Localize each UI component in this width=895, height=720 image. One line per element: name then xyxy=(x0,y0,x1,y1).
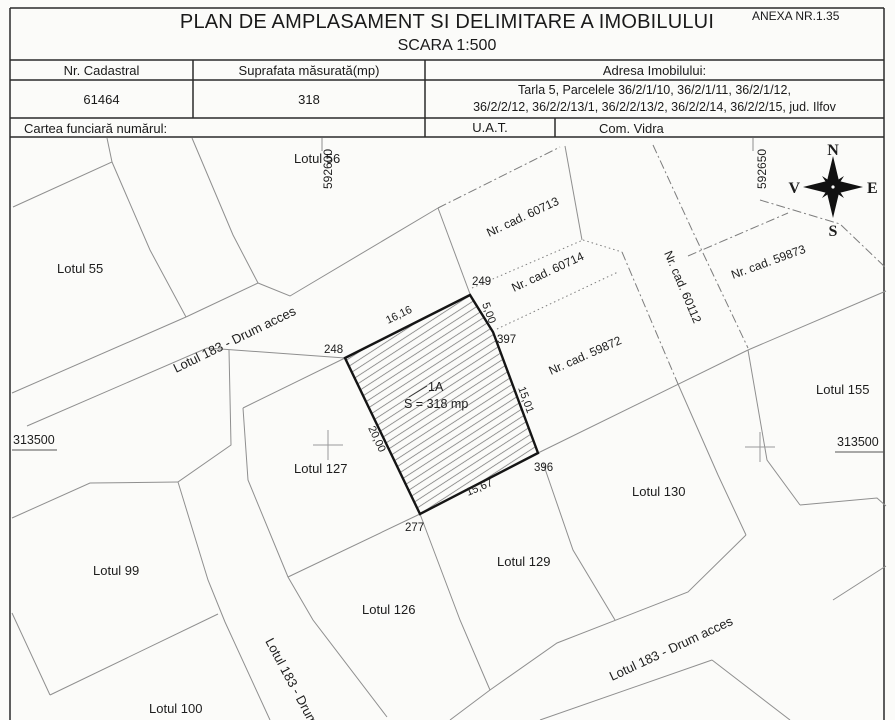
cadastral-plan-page: N S E V Lotul 55 Lotul 56 Lotul 99 Lotul… xyxy=(0,0,895,720)
header-cadastral-number: Nr. Cadastral xyxy=(10,60,193,80)
road-label-vertical: Lotul 183 - Drum acces xyxy=(262,635,339,720)
compass-v-label: V xyxy=(788,180,800,197)
point-label-396: 396 xyxy=(534,462,553,474)
grid-x-right-label: 313500 xyxy=(837,435,879,449)
point-label-248: 248 xyxy=(324,344,343,356)
address-line-1: Tarla 5, Parcelele 36/2/1/10, 36/2/1/11,… xyxy=(425,82,884,99)
annex-number: ANEXA NR.1.35 xyxy=(752,9,839,23)
dash-dot-boundary-lines xyxy=(438,145,886,384)
point-label-277: 277 xyxy=(405,522,424,534)
road-label-lower: Lotul 183 - Drum acces xyxy=(607,613,736,684)
grid-x-left-label: 313500 xyxy=(13,433,55,447)
point-label-249: 249 xyxy=(472,276,491,288)
lot-label-126: Lotul 126 xyxy=(362,602,416,617)
label-uat: U.A.T. xyxy=(425,118,555,137)
parcel-area-label: S = 318 mp xyxy=(404,397,468,411)
lot-label-127: Lotul 127 xyxy=(294,461,348,476)
grid-y-right-label: 592650 xyxy=(755,149,769,189)
parcel-id-label: 1A xyxy=(428,380,444,394)
value-measured-area: 318 xyxy=(193,80,425,118)
lot-label-55: Lotul 55 xyxy=(57,261,103,276)
grid-y-left-label: 592600 xyxy=(321,149,335,189)
lot-label-129: Lotul 129 xyxy=(497,554,551,569)
value-cadastral-number: 61464 xyxy=(10,80,193,118)
neighbor-label-60714: Nr. cad. 60714 xyxy=(509,249,586,295)
compass-n-label: N xyxy=(827,142,839,159)
compass-rose: N S E V xyxy=(788,142,877,240)
road-label-upper: Lotul 183 - Drum acces xyxy=(171,303,299,376)
side-length-nw: 16,16 xyxy=(384,304,414,327)
value-address: Tarla 5, Parcelele 36/2/1/10, 36/2/1/11,… xyxy=(425,82,884,118)
compass-e-label: E xyxy=(867,180,878,197)
page-scale: SCARA 1:500 xyxy=(10,36,884,56)
lot-label-130: Lotul 130 xyxy=(632,484,686,499)
lot-label-100: Lotul 100 xyxy=(149,701,203,716)
header-measured-area: Suprafata măsurată(mp) xyxy=(193,60,425,80)
lot-label-155: Lotul 155 xyxy=(816,382,870,397)
lot-label-99: Lotul 99 xyxy=(93,563,139,578)
compass-s-label: S xyxy=(829,223,838,240)
neighbor-label-59873: Nr. cad. 59873 xyxy=(729,242,807,282)
neighbor-label-59872: Nr. cad. 59872 xyxy=(547,333,624,378)
address-line-2: 36/2/2/12, 36/2/2/13/1, 36/2/2/13/2, 36/… xyxy=(425,99,884,116)
point-label-397: 397 xyxy=(497,334,516,346)
neighbor-label-60713: Nr. cad. 60713 xyxy=(484,194,561,240)
value-uat: Com. Vidra xyxy=(599,121,879,136)
label-land-book: Cartea funciară numărul: xyxy=(24,121,414,136)
neighbor-label-60112: Nr. cad. 60112 xyxy=(661,249,704,326)
header-address: Adresa Imobilului: xyxy=(425,60,884,80)
